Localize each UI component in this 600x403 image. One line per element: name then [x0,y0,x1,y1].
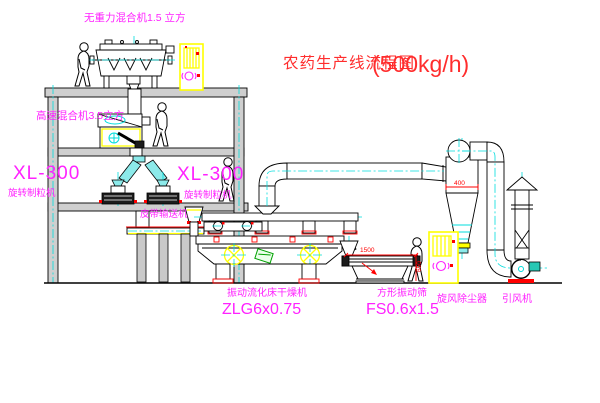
drawing-capacity: (500kg/h) [372,51,469,77]
label-fan-name: 引风机 [502,292,532,305]
label-granulator-left-model: XL-300 [13,163,80,184]
label-granulator-right-model: XL-300 [177,164,244,185]
floor-slab-top [45,88,247,97]
fan-base [508,279,534,283]
person-figure [153,103,168,146]
cad-drawing-pesticide-line: 400 [0,0,600,403]
screen-base [352,266,408,279]
high-speed-mixer [98,89,150,156]
label-screen-model: FS0.6x1.5 [366,301,439,318]
label-granulator-right-name: 旋转制粒机 [184,189,232,201]
dim-screen-height: 650 [416,261,423,272]
y-chute [119,156,167,183]
indicator-light [196,52,199,55]
label-belt-conveyor: 皮带输送机 [140,208,188,220]
label-mixer-top: 无重力混合机1.5 立方 [84,11,186,24]
fan-motor [529,262,540,271]
feed-pipe [128,89,141,114]
floor-slab-mid [48,148,244,156]
screen-hopper [340,241,358,256]
dryer-feet [213,264,319,283]
indicator-light [452,240,455,243]
exhaust-duct [255,163,446,214]
label-granulator-left-name: 旋转制粒机 [8,187,56,199]
stack-cap [507,177,537,190]
control-cabinet-upper [180,44,203,90]
label-screen-name: 方形振动筛 [377,286,427,299]
label-mixer-mid: 高速混合机3.5立方 [36,109,124,122]
screen-deck [342,256,420,266]
dim-screen-length: 1500 [360,247,375,254]
label-dryer-name: 振动流化床干燥机 [227,286,307,299]
person-figure [75,43,90,86]
label-dryer-model: ZLG6x0.75 [222,301,301,318]
cyclone-cylinder [446,157,478,193]
mixer-discharge [127,76,140,84]
dryer-hood [202,213,358,221]
hot-air-pipes [204,222,262,232]
label-cyclone-name: 旋风除尘器 [437,292,487,305]
induced-draft-fan [508,248,540,283]
control-cabinet-lower [429,232,458,283]
fluid-bed-dryer [194,213,362,283]
cyclone-dimension: 400 [454,180,465,187]
